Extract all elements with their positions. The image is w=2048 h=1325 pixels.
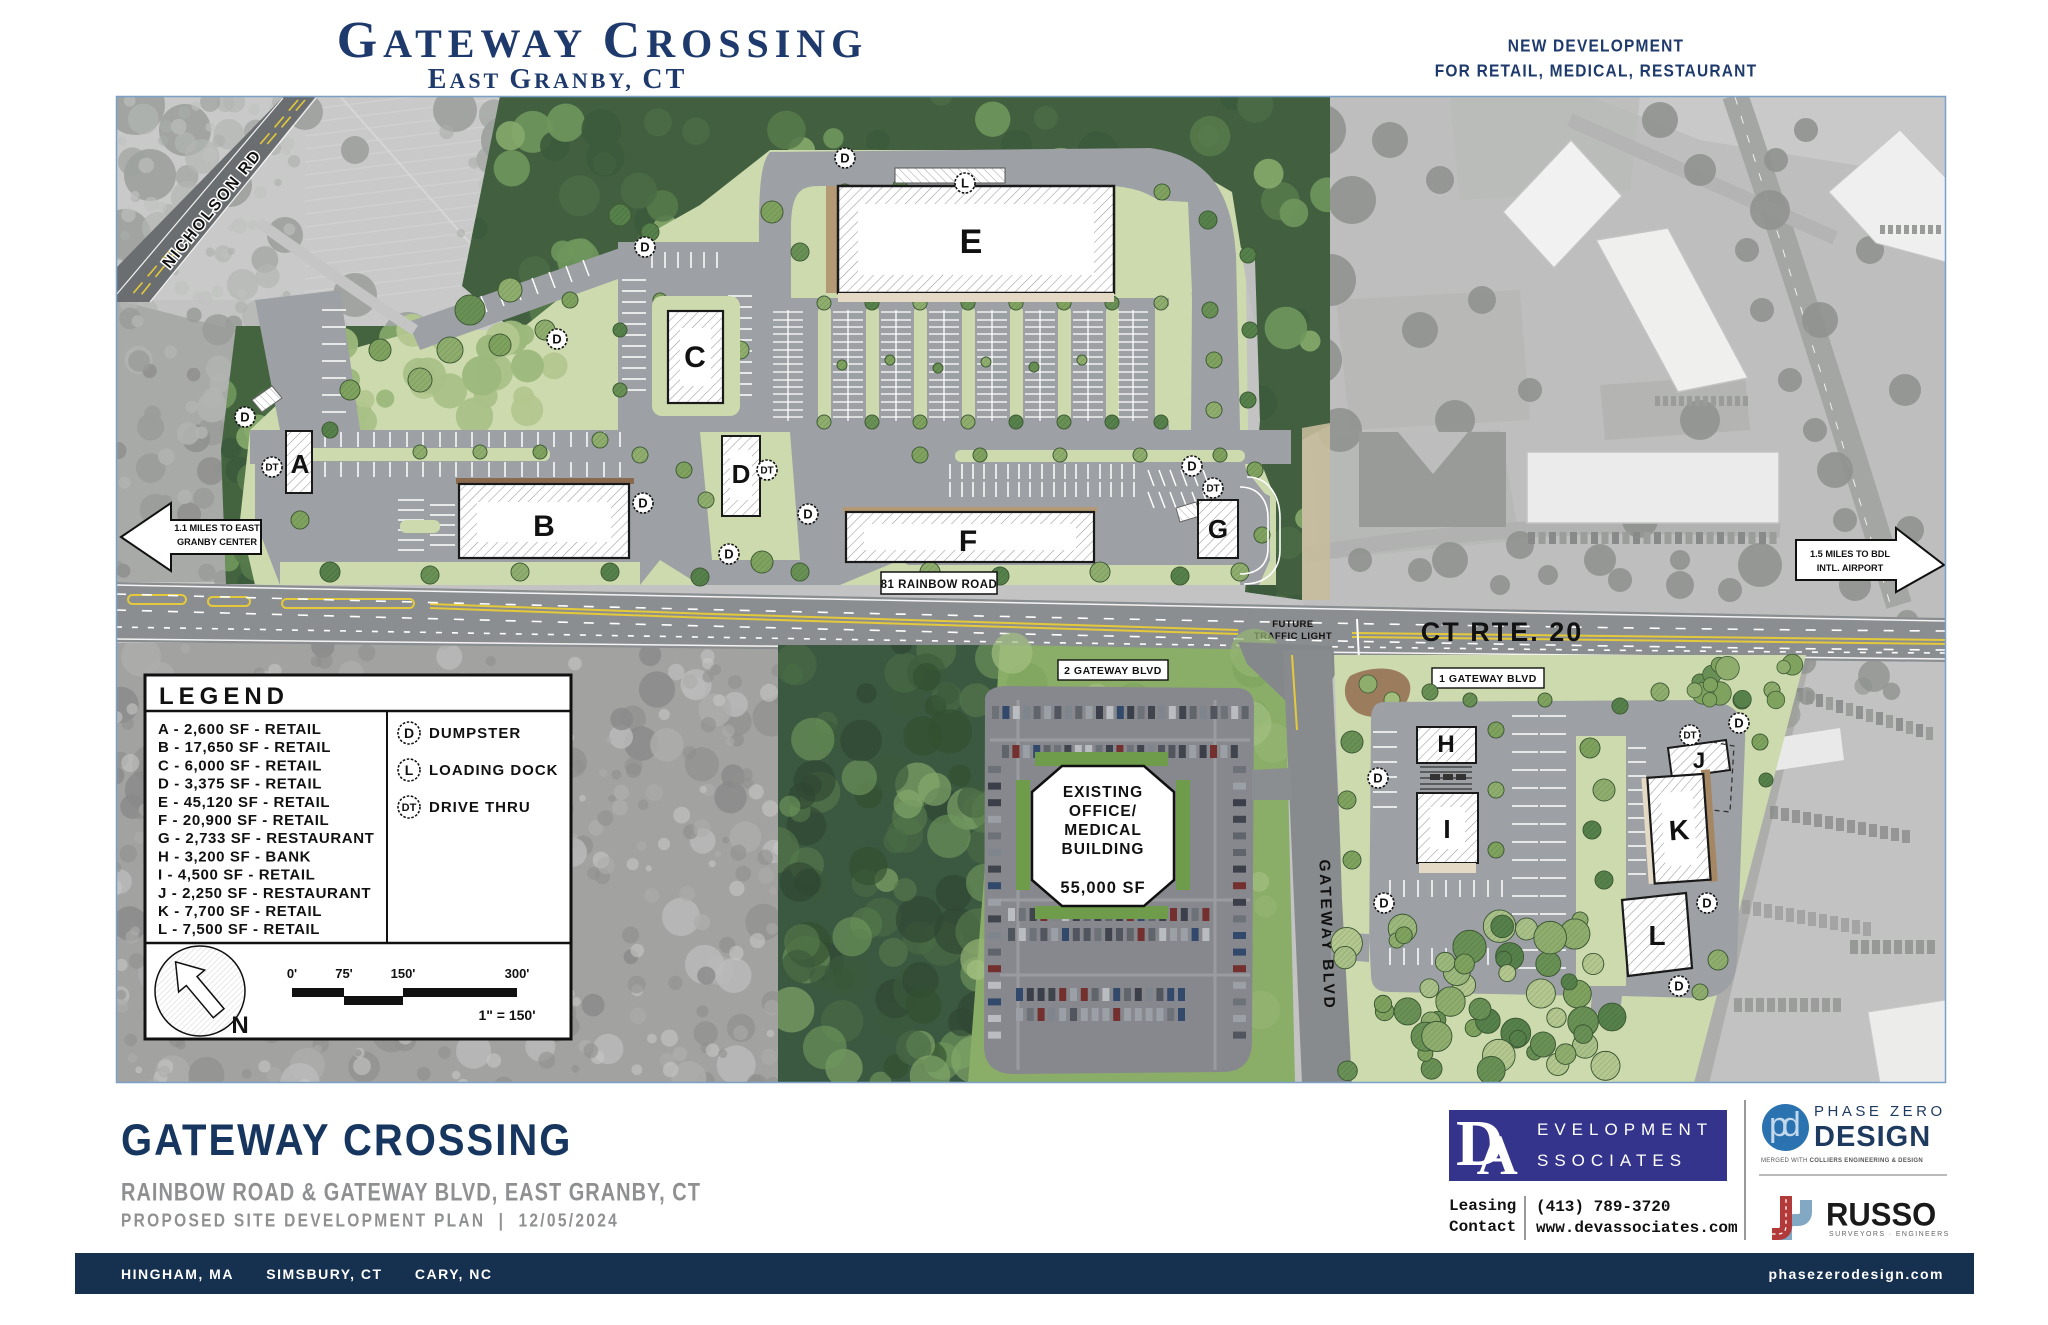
svg-text:D - 3,375 SF - RETAIL: D - 3,375 SF - RETAIL (158, 776, 322, 793)
svg-text:DT: DT (760, 466, 773, 477)
svg-text:G - 2,733 SF - RESTAURANT: G - 2,733 SF - RESTAURANT (158, 830, 374, 847)
svg-text:D: D (840, 151, 849, 166)
svg-text:D: D (1379, 896, 1388, 911)
svg-text:1.1 MILES TO EAST: 1.1 MILES TO EAST (174, 523, 260, 533)
svg-text:DT: DT (1206, 484, 1219, 495)
svg-text:I: I (1443, 814, 1450, 844)
svg-text:DT: DT (1683, 731, 1696, 742)
svg-text:BUILDING: BUILDING (1062, 841, 1145, 858)
svg-text:1 GATEWAY BLVD: 1 GATEWAY BLVD (1439, 673, 1537, 685)
svg-text:300': 300' (505, 966, 530, 981)
svg-text:N: N (231, 1012, 248, 1039)
svg-text:OFFICE/: OFFICE/ (1069, 803, 1137, 820)
svg-text:D: D (552, 332, 561, 347)
svg-text:150': 150' (391, 966, 416, 981)
svg-text:CT RTE. 20: CT RTE. 20 (1421, 617, 1584, 647)
svg-text:D: D (638, 496, 647, 511)
svg-text:D: D (1734, 716, 1743, 731)
svg-text:D: D (1674, 979, 1683, 994)
svg-text:1.5 MILES TO BDL: 1.5 MILES TO BDL (1810, 549, 1890, 559)
svg-text:D: D (1187, 459, 1196, 474)
svg-text:K - 7,700 SF - RETAIL: K - 7,700 SF - RETAIL (158, 903, 322, 920)
svg-text:DRIVE THRU: DRIVE THRU (429, 799, 531, 816)
svg-text:L: L (961, 176, 969, 191)
svg-text:A - 2,600 SF - RETAIL: A - 2,600 SF - RETAIL (158, 721, 321, 738)
svg-text:75': 75' (335, 966, 353, 981)
svg-text:A: A (291, 449, 310, 479)
svg-text:B - 17,650 SF - RETAIL: B - 17,650 SF - RETAIL (158, 739, 331, 756)
svg-text:LEGEND: LEGEND (159, 683, 289, 710)
svg-text:H: H (1437, 731, 1454, 758)
svg-text:DT: DT (265, 463, 278, 474)
svg-text:D: D (1373, 771, 1382, 786)
svg-text:E - 45,120 SF - RETAIL: E - 45,120 SF - RETAIL (158, 794, 330, 811)
svg-text:D: D (724, 547, 733, 562)
svg-text:F - 20,900 SF - RETAIL: F - 20,900 SF - RETAIL (158, 812, 329, 829)
svg-text:D: D (240, 410, 249, 425)
svg-text:FUTURE: FUTURE (1272, 619, 1314, 630)
svg-text:J - 2,250 SF - RESTAURANT: J - 2,250 SF - RESTAURANT (158, 885, 371, 902)
svg-text:C: C (684, 341, 706, 374)
svg-text:DT: DT (402, 802, 417, 814)
svg-text:DUMPSTER: DUMPSTER (429, 725, 521, 742)
svg-text:D: D (803, 507, 812, 522)
svg-text:L - 7,500 SF - RETAIL: L - 7,500 SF - RETAIL (158, 921, 320, 938)
svg-text:D: D (404, 725, 414, 741)
svg-text:81 RAINBOW ROAD: 81 RAINBOW ROAD (881, 579, 998, 591)
svg-text:LOADING DOCK: LOADING DOCK (429, 762, 559, 779)
svg-text:K: K (1668, 814, 1690, 846)
svg-text:D: D (640, 240, 649, 255)
svg-text:J: J (1693, 748, 1705, 773)
svg-text:H - 3,200 SF - BANK: H - 3,200 SF - BANK (158, 848, 311, 865)
svg-text:GRANBY CENTER: GRANBY CENTER (177, 537, 257, 547)
svg-text:D: D (732, 459, 751, 489)
svg-text:I - 4,500 SF - RETAIL: I - 4,500 SF - RETAIL (158, 867, 315, 884)
svg-text:2 GATEWAY BLVD: 2 GATEWAY BLVD (1064, 665, 1162, 677)
svg-text:EXISTING: EXISTING (1063, 784, 1143, 801)
svg-text:F: F (959, 525, 977, 558)
svg-text:1" = 150': 1" = 150' (478, 1007, 535, 1023)
svg-text:E: E (960, 223, 983, 261)
svg-text:C - 6,000 SF - RETAIL: C - 6,000 SF - RETAIL (158, 757, 322, 774)
svg-text:L: L (1648, 920, 1665, 951)
svg-text:INTL. AIRPORT: INTL. AIRPORT (1817, 563, 1884, 573)
svg-text:G: G (1208, 514, 1228, 544)
svg-text:D: D (1702, 896, 1711, 911)
svg-text:B: B (533, 510, 555, 543)
svg-text:0': 0' (287, 966, 297, 981)
svg-text:55,000 SF: 55,000 SF (1060, 879, 1145, 897)
svg-text:MEDICAL: MEDICAL (1064, 822, 1142, 839)
svg-text:L: L (405, 762, 414, 778)
